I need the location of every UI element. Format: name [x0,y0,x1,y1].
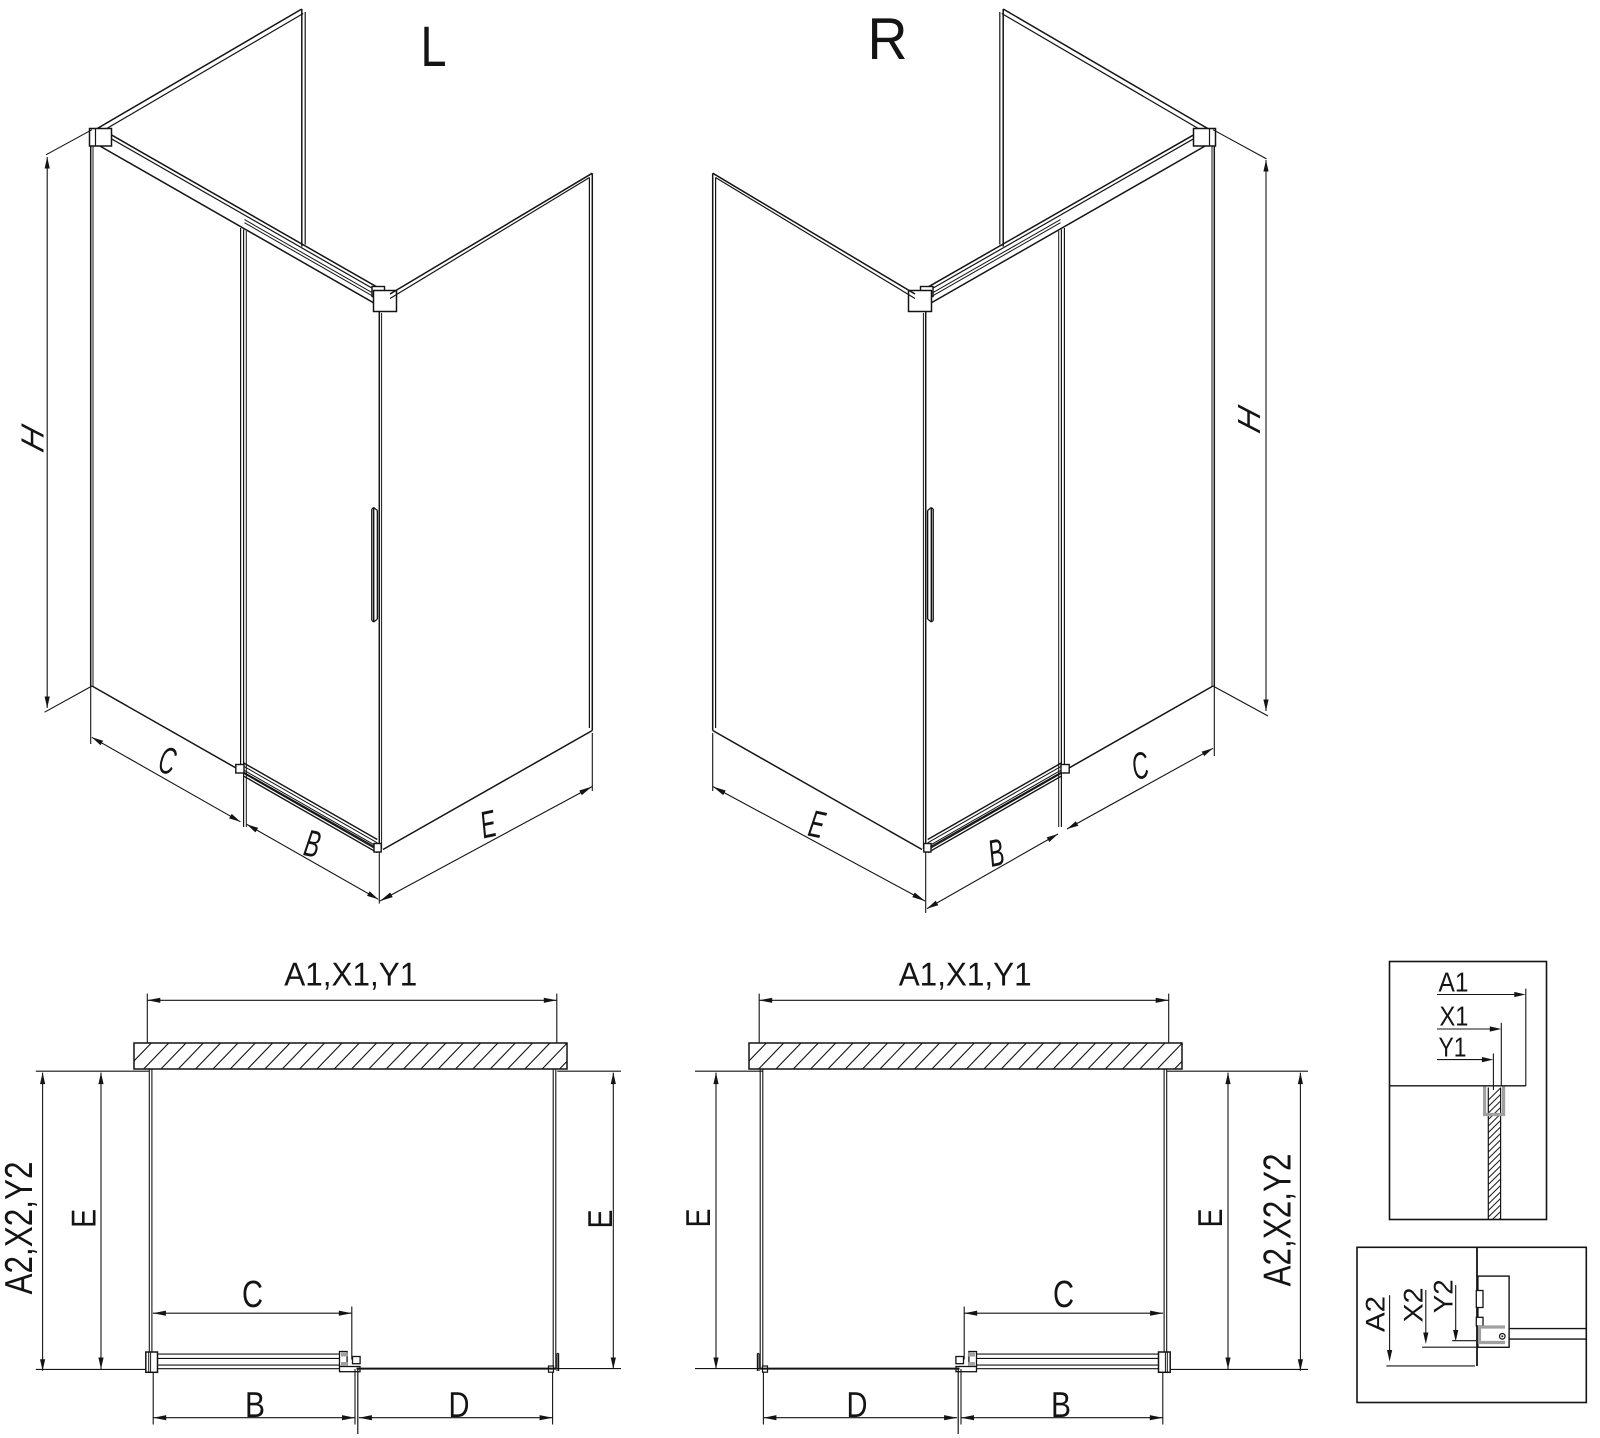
svg-text:E: E [65,1209,103,1228]
svg-text:A1,X1,Y1: A1,X1,Y1 [899,956,1032,993]
svg-text:E: E [582,1210,620,1229]
svg-text:B: B [1051,1384,1071,1425]
svg-text:E: E [680,1209,718,1228]
svg-text:X2: X2 [1399,1288,1429,1323]
svg-text:Y1: Y1 [1439,1032,1467,1063]
svg-text:A2,X2,Y2: A2,X2,Y2 [1257,1154,1300,1287]
svg-text:C: C [242,1274,263,1316]
svg-text:L: L [421,15,447,79]
svg-text:A2,X2,Y2: A2,X2,Y2 [0,1162,41,1295]
svg-text:A2: A2 [1361,1296,1391,1332]
svg-text:A1: A1 [1439,967,1469,998]
svg-text:D: D [449,1384,470,1425]
svg-text:R: R [868,6,908,72]
svg-text:D: D [847,1384,868,1425]
svg-text:E: E [1192,1209,1230,1228]
svg-text:B: B [245,1384,265,1425]
svg-text:C: C [1053,1274,1074,1316]
svg-text:A1,X1,Y1: A1,X1,Y1 [284,956,417,993]
svg-text:X1: X1 [1440,1001,1469,1032]
svg-text:Y2: Y2 [1429,1279,1459,1313]
